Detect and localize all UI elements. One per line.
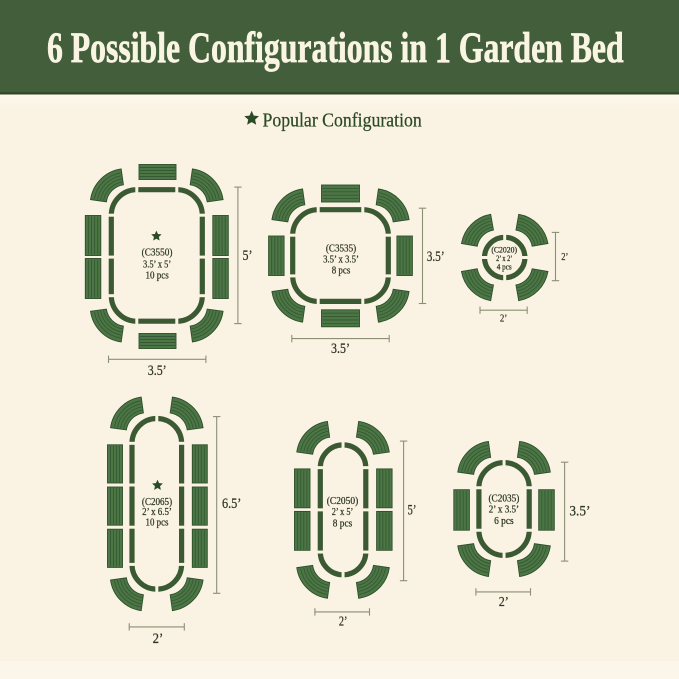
svg-text:Popular Configuration: Popular Configuration: [263, 109, 423, 131]
svg-text:2’: 2’: [500, 313, 507, 325]
svg-text:(C2020): (C2020): [491, 246, 517, 255]
svg-text:4 pcs: 4 pcs: [497, 262, 512, 271]
svg-text:2’: 2’: [561, 251, 568, 263]
svg-text:5’: 5’: [243, 247, 253, 264]
svg-text:3.5’: 3.5’: [427, 248, 445, 265]
svg-text:3.5’: 3.5’: [148, 362, 167, 379]
svg-text:2’: 2’: [339, 613, 348, 629]
svg-text:3.5’: 3.5’: [569, 503, 590, 520]
svg-text:6 Possible Configurations in 1: 6 Possible Configurations in 1 Garden Be…: [47, 25, 624, 73]
svg-text:(C3550): (C3550): [142, 247, 173, 259]
svg-text:5’: 5’: [408, 502, 417, 518]
svg-text:6.5’: 6.5’: [222, 495, 241, 511]
svg-text:2’ x 3.5’: 2’ x 3.5’: [489, 504, 519, 516]
svg-text:2’: 2’: [499, 593, 509, 609]
svg-text:8 pcs: 8 pcs: [333, 518, 352, 530]
svg-text:10 pcs: 10 pcs: [146, 517, 169, 529]
svg-text:2’: 2’: [153, 631, 164, 647]
svg-text:10 pcs: 10 pcs: [145, 270, 168, 282]
svg-text:8 pcs: 8 pcs: [332, 265, 351, 277]
svg-text:(C2035): (C2035): [488, 493, 519, 504]
svg-text:2’ x 5’: 2’ x 5’: [332, 506, 353, 518]
svg-text:6 pcs: 6 pcs: [494, 516, 514, 527]
svg-text:3.5’: 3.5’: [331, 340, 350, 357]
